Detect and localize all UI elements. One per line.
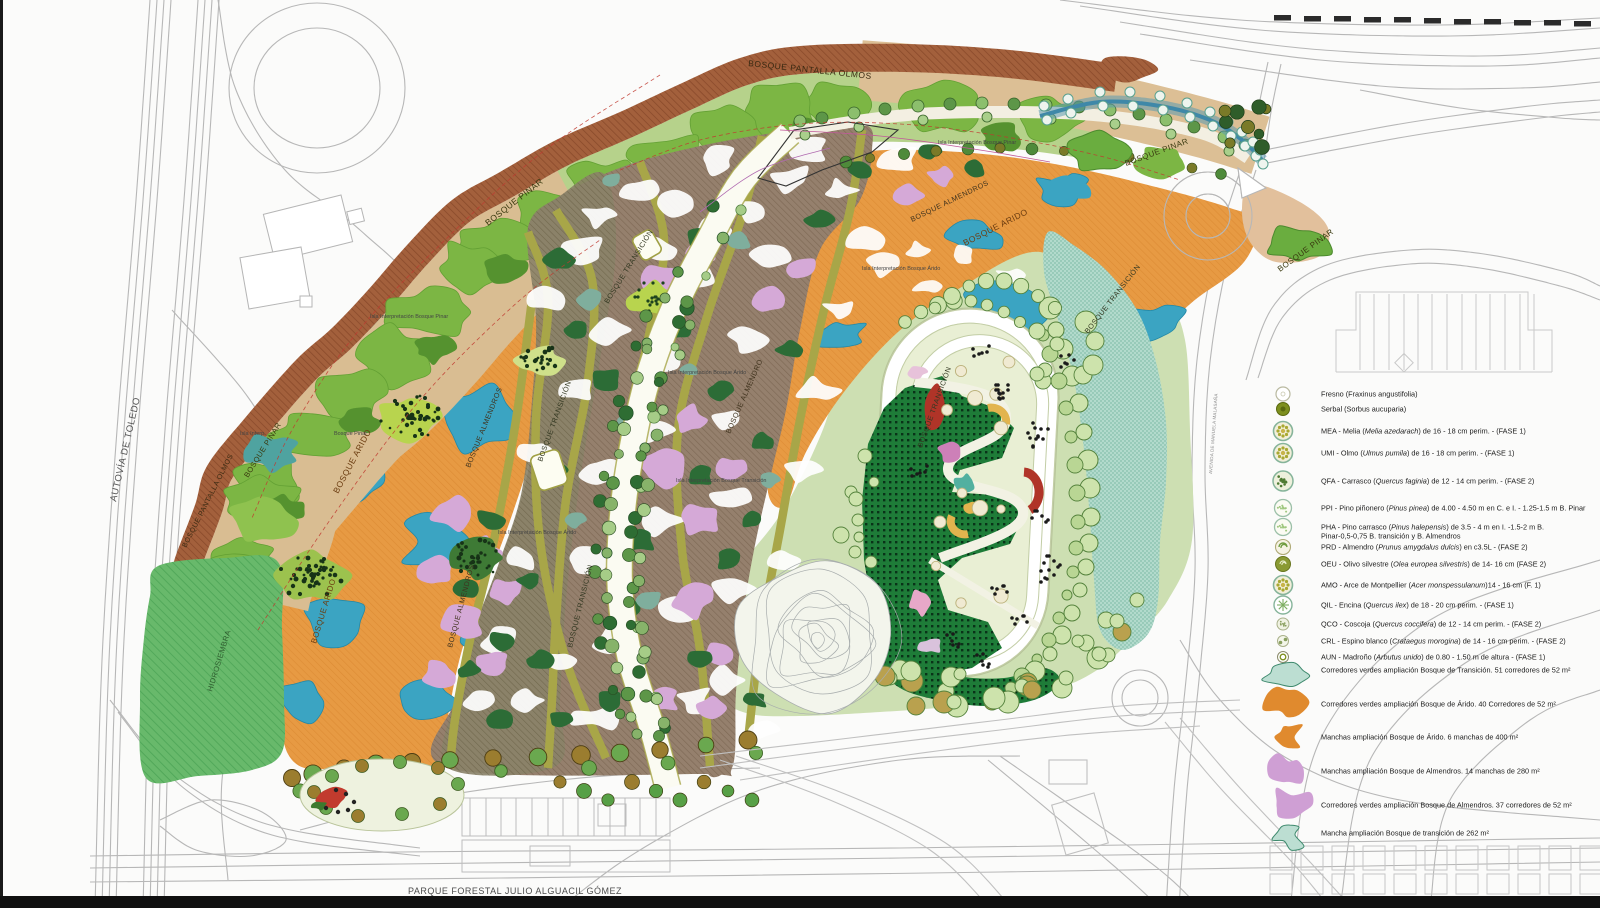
svg-text:PRD - Almendro (Prunus amygdal: PRD - Almendro (Prunus amygdalus dulcis)…	[1321, 543, 1528, 552]
svg-text:Isla Interpretación Bosque Pin: Isla Interpretación Bosque Pinar	[938, 140, 1016, 146]
svg-text:PHA - Pino carrasco (Pinus hal: PHA - Pino carrasco (Pinus halepensis) d…	[1321, 523, 1544, 532]
svg-text:Isla Interpretación Bosque Ári: Isla Interpretación Bosque Árido	[862, 265, 940, 272]
svg-text:QIL - Encina (Quercus ilex) d: QIL - Encina (Quercus ilex) de 18 - 20 c…	[1321, 601, 1514, 610]
svg-text:Isla Interpretación Bosque Pin: Isla Interpretación Bosque Pinar	[370, 314, 448, 320]
svg-text:Isla Interpretación Bosque Tra: Isla Interpretación Bosque Transición	[676, 478, 767, 484]
svg-text:Bosque Pinar: Bosque Pinar	[334, 431, 367, 437]
svg-text:OEU - Olivo silvestre (Olea eu: OEU - Olivo silvestre (Olea europea silv…	[1321, 560, 1546, 569]
svg-text:UMI - Olmo (Ulmus pumila) de 1: UMI - Olmo (Ulmus pumila) de 16 - 18 cm …	[1321, 449, 1514, 458]
svg-text:PPI - Pino piñonero (Pinus pin: PPI - Pino piñonero (Pinus pinea) de 4.0…	[1321, 504, 1586, 513]
svg-text:Isla Interp.: Isla Interp.	[240, 431, 266, 437]
svg-text:QFA - Carrasco (Quercus fagini: QFA - Carrasco (Quercus faginia) de 12 -…	[1321, 477, 1534, 486]
svg-text:AUN - Madroño (Arbutus unido): AUN - Madroño (Arbutus unido) de 0.80 - …	[1321, 653, 1545, 662]
svg-text:Corredores verdes ampliación B: Corredores verdes ampliación Bosque de Á…	[1321, 700, 1556, 709]
svg-text:Pinar-0,5-0,75 B. transición y: Pinar-0,5-0,75 B. transición y B. Almend…	[1321, 532, 1461, 541]
svg-text:AMO - Arce de Montpellier (Ace: AMO - Arce de Montpellier (Acer monspess…	[1321, 581, 1541, 590]
svg-text:Manchas ampliación Bosque de Á: Manchas ampliación Bosque de Árido. 6 ma…	[1321, 733, 1519, 742]
svg-text:MEA - Melia (Melia azedarach): MEA - Melia (Melia azedarach) de 16 - 18…	[1321, 427, 1526, 436]
svg-text:Corredores verdes ampliación B: Corredores verdes ampliación Bosque de A…	[1321, 801, 1572, 810]
svg-text:QCO - Coscoja (Quercus coccife: QCO - Coscoja (Quercus coccifera) de 12 …	[1321, 620, 1541, 629]
svg-text:Isla Interpretación Bosque Ári: Isla Interpretación Bosque Árido	[668, 369, 746, 376]
svg-text:Fresno (Fraxinus angustifolia): Fresno (Fraxinus angustifolia)	[1321, 390, 1418, 399]
svg-text:Isla Interpretación Bosque Ári: Isla Interpretación Bosque Árido	[498, 529, 576, 536]
svg-text:CRL - Espino blanco (Crataegu: CRL - Espino blanco (Crataegus morogina)…	[1321, 637, 1566, 646]
svg-text:Mancha ampliación Bosque de tr: Mancha ampliación Bosque de transición d…	[1321, 829, 1489, 838]
svg-text:Manchas ampliación Bosque de A: Manchas ampliación Bosque de Almendros. …	[1321, 767, 1540, 776]
svg-text:Serbal (Sorbus aucuparia): Serbal (Sorbus aucuparia)	[1321, 405, 1406, 414]
svg-text:Corredores verdes ampliación B: Corredores verdes ampliación Bosque de T…	[1321, 666, 1571, 675]
svg-text:PARQUE FORESTAL JULIO ALGUACIL: PARQUE FORESTAL JULIO ALGUACIL GÓMEZ	[408, 886, 622, 896]
